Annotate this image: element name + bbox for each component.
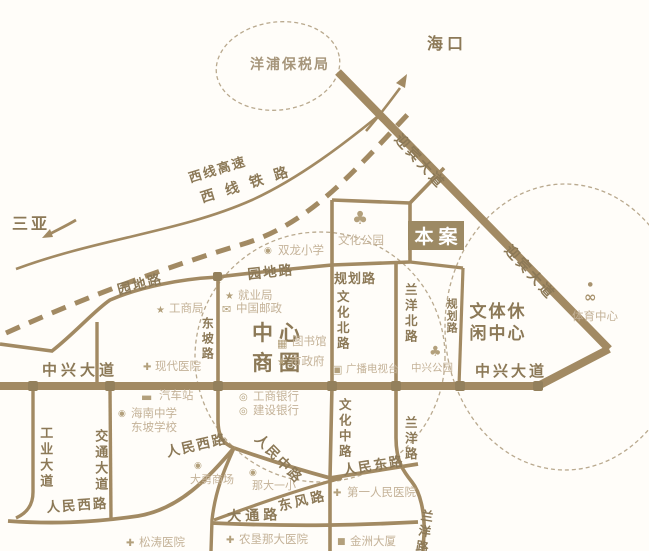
road-label-lanyang-north: 兰洋北路 [402,283,416,345]
bank-coin-icon-ccb: ◎ [239,407,248,417]
poi-label-tv-station: 广播电视台 [346,364,399,376]
poi-label-nongken-nada-hospital: 农垦那大医院 [239,534,308,547]
poi-label-sports-center: 体育中心 [572,311,618,324]
road-label-planned-v: 规划路 [445,298,457,334]
school-dot-icon-hainan: ◉ [118,410,126,419]
poi-label-songtao-hospital: 松涛医院 [139,537,185,550]
zone-label-sports-leisure: 文体休 闲中心 [466,301,530,345]
road-planned-extension [410,262,463,268]
poi-label-wenhua-park: 文化公园 [338,235,384,248]
library-building-icon: ▦ [277,338,287,349]
tree-icon: ♣ [352,210,368,228]
poi-label-xiandai-hospital: 现代医院 [155,361,201,374]
school-dot-icon: ◉ [264,247,272,256]
sports-leisure-line2: 闲中心 [466,323,530,345]
school-dot-icon-nada: ◉ [249,469,257,478]
road-label-gongye: 工业大道 [38,426,52,490]
poi-label-ccb-bank: 建设银行 [253,405,299,418]
bicycle-icon: ∞ [584,288,597,306]
poi-label-hainan-school: 海南中学 东坡学校 [131,407,177,436]
location-map: 三亚 海口 洋浦保税局 西线高速 西 线 铁 路 迎宾大道 迎宾大道 园地路 园… [0,0,649,551]
bus-icon: ▬ [141,391,152,403]
hospital-cross-icon-first-people: ✚ [333,489,341,499]
road-label-wenhua-north: 文化北路 [334,290,348,352]
building-square-icon-jinzhou: ■ [337,538,346,547]
road-label-planned-h: 规划路 [334,272,376,286]
road-label-lanyang-mid: 兰洋路 [402,416,416,463]
road-gongye [16,387,33,518]
bank-coin-icon-icbc: ◎ [239,393,248,403]
star-icon-gongshang: ★ [156,306,165,316]
poi-label-china-post: 中国邮政 [236,303,282,316]
road-xixian-railway [6,112,410,333]
star-icon-jiuye: ★ [225,292,234,302]
poi-label-dayong-mall: 大勇商场 [190,474,234,486]
road-label-zhongxing-west: 中兴大道 [42,363,118,380]
poi-label-shuanglong-primary: 双龙小学 [278,245,324,258]
sanya-arrow-line [48,220,76,235]
poi-label-jinzhou-building: 金洲大厦 [350,536,396,549]
road-planned-vertical [459,268,463,386]
hospital-cross-icon-nongken: ✚ [226,536,234,546]
poi-label-bus-station: 汽车站 [159,390,194,403]
hainan-school-line2: 东坡学校 [131,421,177,435]
road-label-datong: 大通路 [227,508,282,525]
city-label-sanya: 三亚 [12,216,50,234]
poi-label-icbc-bank: 工商银行 [253,391,299,404]
poi-label-library: 图书馆 [292,336,327,349]
star-icon-city-hall: ★ [277,358,286,368]
tv-icon: ▣ [332,364,342,375]
zone-label-yangpu-bonded: 洋浦保税局 [250,58,330,73]
tree-icon-zhongxing-park: ♣ [429,345,442,359]
hospital-cross-icon-xiandai: ✚ [143,363,151,373]
poi-label-jiuye-bureau: 就业局 [238,290,273,303]
site-marker: 本案 [408,221,464,250]
road-label-zhongxing-east: 中兴大道 [475,364,547,381]
road-label-wenhua-middle: 文化中路 [336,398,350,460]
arrow-ne-head [396,74,407,88]
poi-label-city-hall: 市政府 [290,356,325,369]
poi-label-zhongxing-park: 中兴公园 [411,363,453,375]
sports-leisure-line1: 文体休 [466,301,530,323]
hospital-cross-icon-songtao: ✚ [126,539,134,549]
road-label-jiaotong: 交通大道 [93,429,107,493]
hainan-school-line1: 海南中学 [131,407,177,421]
road-block-top-edge [332,200,410,203]
road-label-dongpo: 东坡路 [200,317,213,362]
poi-label-nada-first-primary: 那大一小 [252,480,296,492]
mail-icon: ✉ [222,304,231,315]
poi-label-gongshang-bureau: 工商局 [169,303,204,316]
city-label-haikou: 海口 [427,36,467,54]
poi-label-first-people-hospital: 第一人民医院 [347,487,416,500]
mall-dot-icon-dayong: ◉ [194,462,202,471]
road-jiaotong [110,387,111,520]
